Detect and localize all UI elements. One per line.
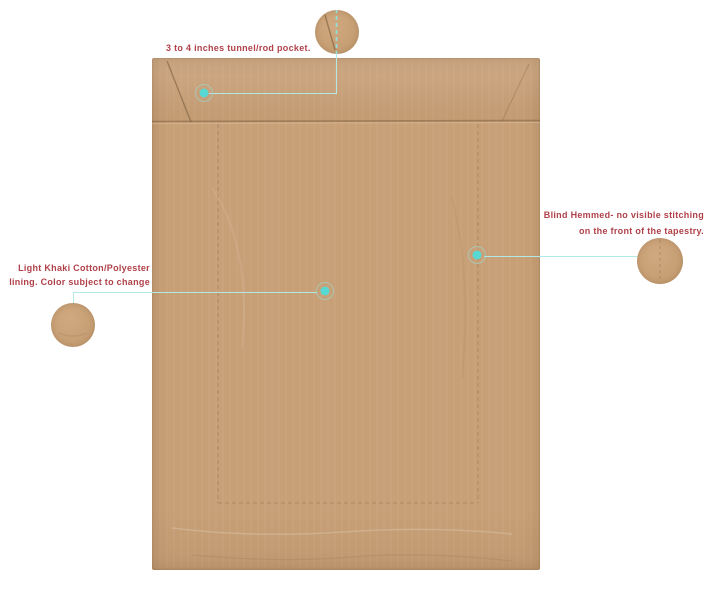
label-blind-hem-line2: on the front of the tapestry. (544, 223, 704, 239)
callout-dot-blind-hem (468, 246, 486, 264)
callout-dot-lining (316, 282, 334, 300)
detail-circle-rod-pocket (315, 10, 359, 54)
tapestry-back-image (152, 58, 540, 570)
fabric-seam-lines (152, 58, 540, 570)
left-fold-diagonal (167, 61, 191, 122)
wrinkle-shadow-1 (192, 555, 512, 561)
wrinkle-highlight-2 (212, 188, 244, 348)
detail-fabric-texture (59, 333, 87, 336)
label-blind-hem: Blind Hemmed- no visible stitching on th… (544, 207, 704, 239)
label-blind-hem-line1: Blind Hemmed- no visible stitching (544, 207, 704, 223)
leader-line-rod-pocket-vertical (336, 53, 338, 93)
label-rod-pocket: 3 to 4 inches tunnel/rod pocket. (166, 43, 311, 53)
right-fold-diagonal (502, 64, 529, 121)
leader-line-blind-hem (484, 256, 638, 258)
rod-pocket-detail-graphic (315, 10, 359, 54)
product-annotation-canvas: 3 to 4 inches tunnel/rod pocket. Blind H… (0, 0, 706, 600)
label-lining-line2: lining. Color subject to change (0, 276, 150, 290)
pocket-seam-line (152, 121, 540, 122)
wrinkle-highlight-1 (172, 528, 512, 534)
detail-circle-blind-hem (637, 238, 683, 284)
leader-line-lining-horizontal (73, 292, 317, 294)
detail-circle-lining (51, 303, 95, 347)
leader-line-rod-pocket-horizontal (209, 93, 337, 95)
callout-dot-rod-pocket (195, 84, 213, 102)
detail-fold-line (325, 15, 335, 50)
blind-hem-detail-graphic (637, 238, 683, 284)
wrinkle-shadow-2 (452, 198, 465, 378)
label-lining-line1: Light Khaki Cotton/Polyester (0, 262, 150, 276)
pocket-seam-highlight (152, 123, 540, 124)
lining-detail-graphic (51, 303, 95, 347)
label-lining: Light Khaki Cotton/Polyester lining. Col… (0, 262, 150, 289)
